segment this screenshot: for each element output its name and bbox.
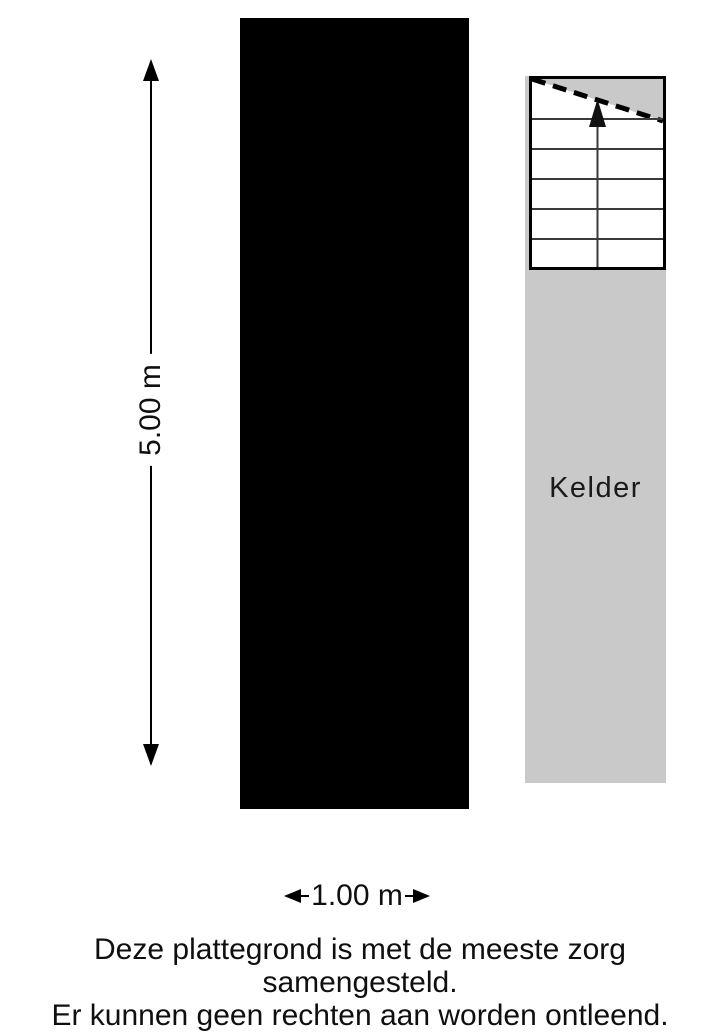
dimension-arrow-right-icon <box>405 889 430 903</box>
dimension-arrow-down-icon <box>143 744 159 766</box>
disclaimer: Deze plattegrond is met de meeste zorg s… <box>0 933 720 1032</box>
staircase <box>529 76 666 270</box>
disclaimer-line-1: Deze plattegrond is met de meeste zorg s… <box>0 933 720 999</box>
horizontal-dimension-label: 1.00 m <box>311 880 403 912</box>
disclaimer-line-2: Er kunnen geen rechten aan worden ontlee… <box>0 999 720 1032</box>
kelder-room: Kelder <box>525 76 666 783</box>
vertical-dimension-label: 5.00 m <box>132 354 170 466</box>
staircase-drawing <box>532 79 663 267</box>
horizontal-dimension: 1.00 m <box>284 880 430 912</box>
wall-outline: Kelder <box>240 18 469 809</box>
dimension-arrow-up-icon <box>143 59 159 81</box>
dimension-arrow-left-icon <box>284 889 309 903</box>
room-label: Kelder <box>525 472 666 505</box>
floor-plan-page: Kelder 5.00 m 1.00 m Deze plattegrond is… <box>0 0 720 1017</box>
